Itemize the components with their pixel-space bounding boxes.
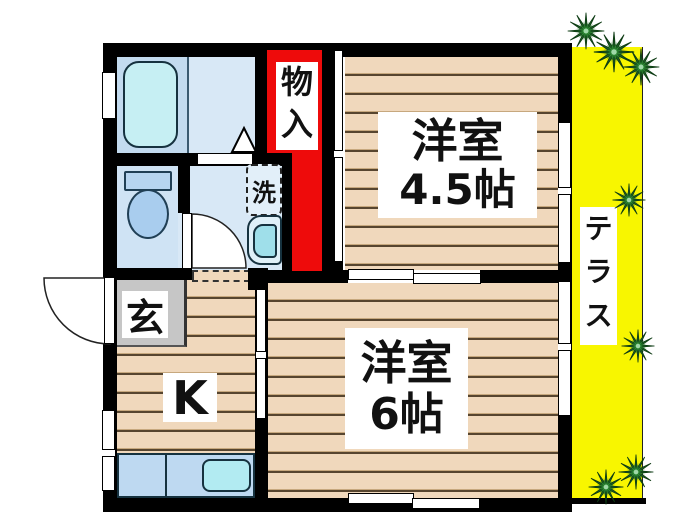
room-6-name: 洋室 [361, 337, 453, 390]
wall-basin-closet [282, 153, 292, 283]
wall-bottom [103, 498, 572, 512]
plant-icon [621, 47, 661, 87]
room6-terrace-window [558, 281, 571, 416]
washing-machine: 洗 [246, 164, 282, 216]
washbasin-bowl [253, 224, 277, 258]
washroom-door-swing [186, 209, 252, 273]
plant-icon [611, 182, 647, 218]
room-4-5-name: 洋室 [412, 116, 504, 167]
plant-icon [620, 328, 656, 364]
kitchen-sink [202, 459, 251, 492]
wall-entrance-top [103, 268, 192, 280]
storage-label: 物入 [276, 62, 318, 150]
room-6-label: 洋室 6帖 [345, 328, 468, 449]
floorplan: 洗 物入 洋室 4.5帖 洋室 6帖 玄 K テラス [0, 0, 700, 525]
toilet-bowl [127, 189, 169, 239]
bathroom-door [197, 153, 253, 165]
rooms-divider-door-sash1 [348, 269, 414, 280]
bathroom-door-swing-icon [231, 126, 257, 154]
washing-machine-label: 洗 [252, 173, 276, 208]
room-4-5-size: 4.5帖 [399, 166, 515, 214]
terrace-label: テラス [580, 207, 617, 345]
entrance-label: 玄 [122, 291, 168, 338]
rooms-divider-door-sash2 [413, 273, 481, 284]
toilet-tank [124, 171, 172, 191]
storage-closet-lower [292, 153, 322, 271]
wall-rooms-divider-left [248, 270, 348, 283]
room-6-size: 6帖 [369, 390, 444, 441]
room45-sliding-door [334, 50, 343, 262]
kitchen-room6-sliding-door [256, 289, 266, 419]
bathtub [123, 61, 178, 148]
room45-terrace-window [558, 122, 571, 263]
kitchen-counter-divider [165, 453, 167, 498]
plant-icon [617, 453, 655, 491]
room6-bottom-window-sash2 [412, 498, 480, 509]
wall-toilet-right [178, 166, 190, 213]
entrance-door-leaf [104, 277, 115, 344]
kitchen-label: K [163, 373, 217, 422]
room-4-5-label: 洋室 4.5帖 [378, 112, 537, 218]
room6-bottom-window-sash1 [348, 493, 414, 504]
washroom-door-leaf [182, 213, 192, 269]
kitchen-window [102, 410, 115, 491]
bathroom-window [102, 72, 116, 119]
